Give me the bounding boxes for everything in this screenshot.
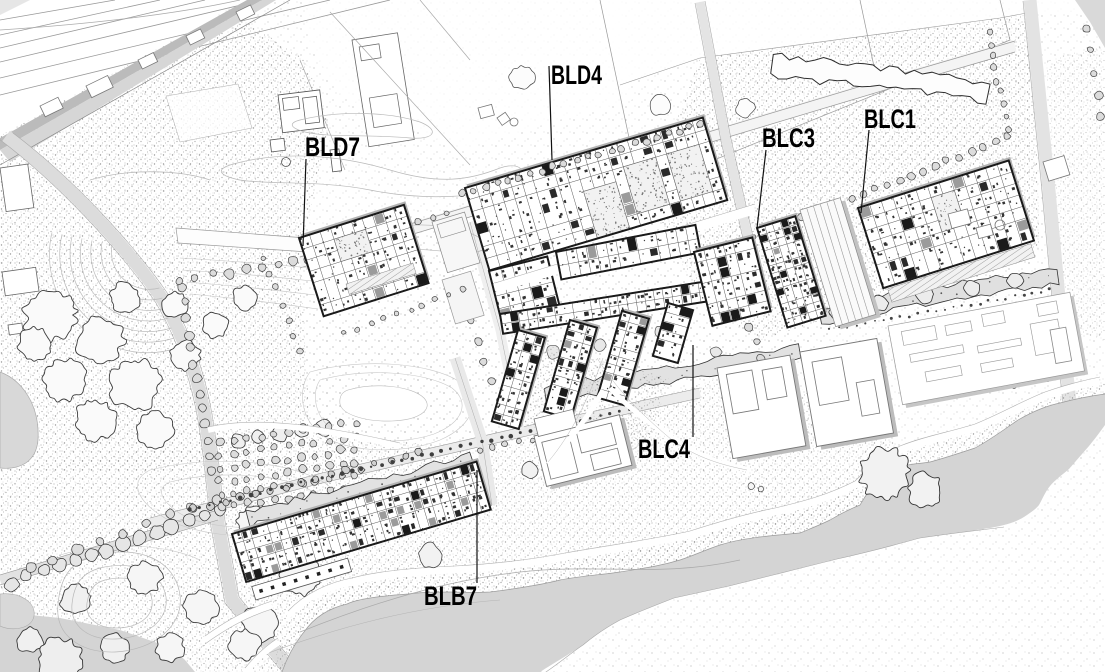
svg-text:BLC1: BLC1 (864, 104, 916, 134)
svg-text:BLD4: BLD4 (551, 60, 602, 90)
svg-text:BLC3: BLC3 (762, 123, 815, 153)
svg-text:BLB7: BLB7 (424, 581, 477, 611)
svg-text:BLC4: BLC4 (638, 434, 690, 464)
svg-text:BLD7: BLD7 (305, 132, 360, 162)
